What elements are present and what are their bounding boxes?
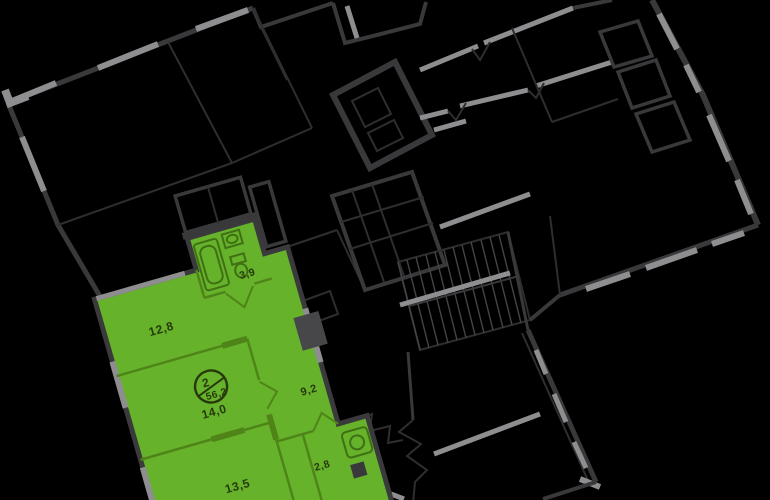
building-walls xyxy=(5,0,758,500)
apartment-unit-highlighted[interactable]: 12,8 3,9 9,2 14,0 13,5 2,8 2 56,2 xyxy=(73,162,393,500)
floor-plan-stage: 12,8 3,9 9,2 14,0 13,5 2,8 2 56,2 xyxy=(0,0,770,500)
floor-plan-canvas: 12,8 3,9 9,2 14,0 13,5 2,8 2 56,2 xyxy=(0,0,770,500)
